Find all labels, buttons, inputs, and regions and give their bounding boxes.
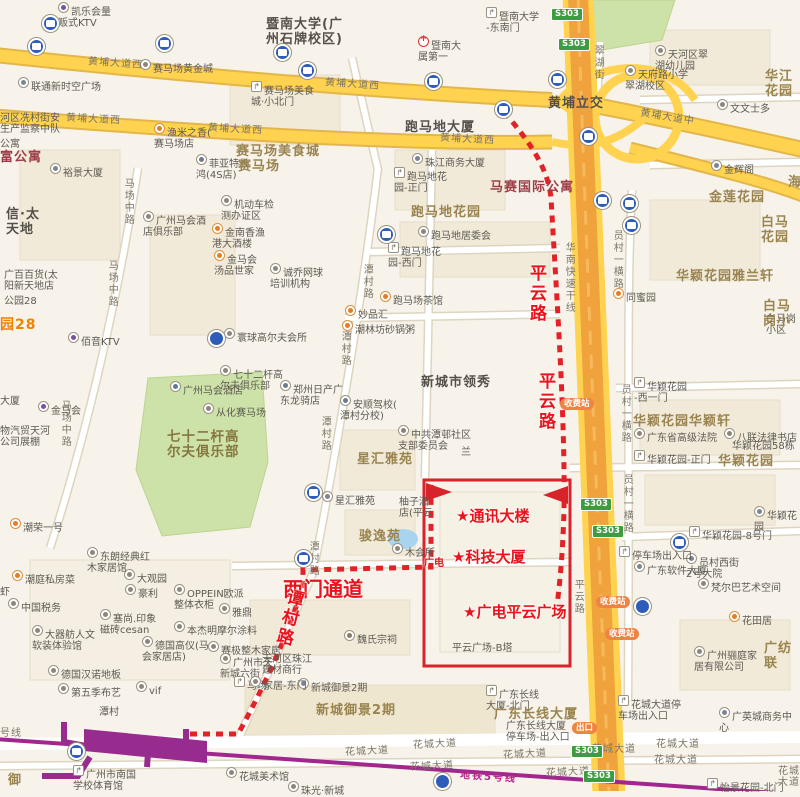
poi-icon: [224, 328, 235, 339]
poi-label: 广东软件大厦: [634, 561, 707, 577]
gate-icon: [634, 450, 645, 461]
road-label: 花城大道: [410, 760, 455, 773]
area-label: 赛马场美食城: [236, 145, 320, 160]
poi-label: 星汇雅苑: [322, 491, 375, 507]
area-label: 信·太 天地: [6, 208, 40, 237]
poi-label: 金马会 汤品世家: [214, 250, 257, 277]
poi-icon: [220, 365, 231, 376]
road-label: 潭村路: [361, 264, 372, 300]
route-shield-s303: S303: [580, 498, 612, 511]
gate-icon: [634, 377, 645, 388]
poi-label: 本杰明摩尔涂料: [174, 621, 257, 637]
poi-label: vif: [136, 681, 161, 697]
road-label: 潭村路: [319, 416, 330, 452]
poi-label: 跑马地居委会: [418, 226, 491, 242]
building-icon: [711, 160, 722, 171]
bus-stop-icon: [621, 195, 638, 212]
road-label: 马场中路: [59, 400, 70, 448]
poi-label: 联通新时空广场: [18, 77, 101, 93]
building-icon: [412, 153, 423, 164]
gate-icon: [619, 546, 630, 557]
poi-icon: [174, 621, 185, 632]
car-icon: [280, 380, 291, 391]
road-label: 花城大道: [503, 748, 548, 761]
poi-label: 华颖花园-8号门: [689, 526, 772, 542]
poi-label: 渔米之香( 赛马场店: [154, 123, 211, 150]
poi-label: 塞尚.印象 磁砖cesan: [100, 609, 156, 636]
road-label: 平云路: [572, 579, 583, 615]
toll-station-badge: 收费站: [605, 628, 639, 640]
area-label: 骏逸苑: [359, 530, 401, 545]
poi-label: 天府路小学 翠湖校区: [625, 65, 688, 92]
poi-label: 河区冼村街安 生产监察中队: [0, 113, 60, 135]
road-label: 员村一横路: [611, 230, 622, 290]
route-annotation: ★科技大厦: [452, 546, 525, 567]
poi-label: 花田居: [729, 611, 772, 627]
route-annotation: 谭村路: [269, 586, 308, 650]
food-icon: [212, 223, 223, 234]
route-annotation: 平云路: [524, 264, 549, 324]
poi-label: 大器舫人文 软装体验馆: [32, 625, 95, 652]
poi-label: 怡景花园-北门: [707, 778, 784, 794]
poi-icon: [694, 646, 705, 657]
road-label: 花城大道: [345, 745, 390, 758]
poi-label: 赛马场美食 城·小北门: [251, 81, 314, 108]
poi-label: 柚子酒 店(平云: [399, 497, 433, 519]
route-annotation: 平云路: [533, 372, 558, 432]
poi-label: 佰音KTV: [68, 332, 120, 348]
gate-icon: [707, 778, 718, 789]
gate-icon: [388, 242, 399, 253]
bus-stop-icon: [623, 217, 640, 234]
poi-icon: [136, 681, 147, 692]
route-annotation: ★广电平云广场: [463, 601, 566, 622]
road-label: 地铁5号线: [460, 770, 518, 785]
poi-label: 暨南大学 -东南门: [486, 7, 539, 34]
poi-label: 豪利: [125, 584, 158, 600]
area-label: 海: [788, 176, 800, 191]
poi-icon: [32, 625, 43, 636]
poi-label: 跑马地花 园-西门: [388, 242, 441, 269]
poi-label: 花城大道停 车场出入口: [618, 695, 681, 722]
food-icon: [380, 291, 391, 302]
building-icon: [50, 163, 61, 174]
area-label: 金莲花园: [709, 191, 765, 206]
map-labels-layer: 凯乐会量 贩式KTV联通新时空广场河区冼村街安 生产监察中队公寓裕景大厦渔米之香…: [0, 0, 800, 791]
poi-label: 华颖花园-正门: [634, 450, 711, 466]
poi-label: 诚乔网球 培训机构: [270, 263, 323, 290]
poi-label: 天河区珠江 建材商行: [262, 654, 312, 676]
temple-icon: [344, 630, 355, 641]
poi-label: 潮林坊砂锅粥: [342, 320, 415, 336]
area-label: 华江花园: [765, 70, 800, 99]
poi-label: 珠光·新城: [288, 781, 344, 797]
poi-label: 妙品汇: [345, 305, 388, 321]
poi-icon: [717, 99, 728, 110]
poi-icon: [142, 636, 153, 647]
bus-stop-icon: [425, 73, 442, 90]
road-label: 黄埔大道西: [440, 133, 496, 147]
poi-icon: [203, 403, 214, 414]
poi-label: 凯乐会量 贩式KTV: [58, 2, 111, 29]
bus-stop-icon: [671, 534, 688, 551]
road-label: 黄埔大道中: [639, 108, 695, 128]
poi-icon: [392, 543, 403, 554]
area-label: 园28: [0, 318, 36, 334]
poi-label: 公园28: [4, 296, 37, 307]
poi-label: 雅鼎: [219, 603, 252, 619]
poi-icon: [125, 584, 136, 595]
road-label: 翠湖街: [592, 45, 603, 81]
poi-icon: [221, 195, 232, 206]
road-label: 黄埔大道西: [66, 113, 122, 127]
area-label: 华颖花园华颖轩: [633, 415, 731, 430]
poi-icon: [174, 584, 185, 595]
poi-label: 广州市南国 学校体育馆: [73, 765, 136, 792]
bus-stop-icon: [305, 484, 322, 501]
poi-label: 从化赛马场: [203, 403, 266, 419]
parking-icon: [634, 598, 651, 615]
poi-label: 潭村: [99, 707, 119, 718]
bus-stop-icon: [156, 35, 173, 52]
gate-icon: [251, 81, 262, 92]
poi-icon: [250, 676, 261, 687]
gate-icon: [234, 676, 245, 687]
poi-label: 寰球高尔夫会所: [224, 328, 307, 344]
car-icon: [340, 395, 351, 406]
poi-label: 华颖花园58栋: [732, 441, 795, 452]
poi-label: 花城美术馆: [226, 767, 289, 783]
route-shield-s303: S303: [583, 770, 615, 783]
building-icon: [754, 506, 765, 517]
poi-label: 跑马场茶馆: [380, 291, 443, 307]
building-icon: [322, 491, 333, 502]
poi-icon: [270, 263, 281, 274]
route-annotation: ★通讯大楼: [456, 505, 529, 526]
poi-label: 金辉阁: [711, 160, 754, 176]
poi-label: 广东省高级法院: [634, 428, 717, 444]
bus-stop-icon: [594, 192, 611, 209]
poi-label: 安顺驾校( 潭村分校): [340, 395, 397, 422]
poi-icon: [226, 767, 237, 778]
poi-icon: [625, 65, 636, 76]
road-label: 花城大道: [778, 766, 800, 788]
exit-badge: 出口: [572, 722, 597, 734]
bus-stop-icon: [495, 101, 512, 118]
poi-label: 郑州日产广 东龙骑店: [280, 380, 343, 407]
road-label: 马场中路: [106, 260, 117, 308]
poi-label: 同蜜园: [613, 288, 656, 304]
route-shield-s303: S303: [571, 745, 603, 758]
area-label: 马赛国际公寓: [490, 181, 574, 196]
ktv-icon: [58, 2, 69, 13]
route-shield-s303: S303: [551, 8, 583, 21]
road-label: 花城大道: [654, 755, 698, 766]
poi-label: 家居-东门: [250, 676, 307, 692]
poi-icon: [724, 428, 735, 439]
poi-icon: [58, 683, 69, 694]
road-label: 马场中路: [122, 178, 133, 226]
poi-label: 广州马会酒店: [170, 381, 243, 397]
poi-icon: [288, 781, 299, 792]
building-icon: [634, 561, 645, 572]
area-label: 广东长线大厦: [494, 708, 578, 723]
road-label: 号线: [0, 728, 22, 739]
gate-icon: [689, 526, 700, 537]
area-label: 七十二杆高 尔夫俱乐部: [167, 430, 240, 460]
poi-label: 虾: [0, 587, 10, 598]
area-label: 黄埔立交: [548, 97, 604, 112]
road-label: 花城大道: [413, 738, 458, 751]
parking-icon: [208, 330, 225, 347]
area-label: 白马岗小: [763, 300, 800, 329]
poi-label: 第五季布艺: [58, 683, 121, 699]
food-icon: [154, 123, 165, 134]
route-shield-s303: S303: [558, 38, 590, 51]
poi-icon: [655, 45, 666, 56]
poi-icon: [219, 603, 230, 614]
poi-icon: [143, 211, 154, 222]
bus-stop-icon: [549, 71, 566, 88]
poi-icon: [87, 547, 98, 558]
road-label: 黄埔大道西: [88, 56, 144, 71]
poi-icon: [48, 665, 59, 676]
poi-icon: [100, 609, 111, 620]
poi-label: 新城御景2期: [298, 678, 367, 694]
road-label: 花城大道: [656, 739, 700, 750]
area-label: 华颖花园: [718, 455, 774, 470]
building-icon: [719, 707, 730, 718]
poi-label: 潮荣一号: [10, 518, 63, 534]
gate-icon: [486, 685, 497, 696]
food-icon: [342, 320, 353, 331]
poi-label: 东朗经典红 木家居馆: [87, 547, 150, 574]
poi-label: 魏氏宗祠: [344, 630, 397, 646]
hospital-icon: [418, 36, 429, 47]
area-label: 新城御景2期: [316, 704, 396, 719]
poi-label: 金南香渔 港大酒楼: [212, 223, 265, 250]
poi-label: 德国汉诺地板: [48, 665, 121, 681]
bus-stop-icon: [378, 226, 395, 243]
toll-station-badge: 收费站: [596, 596, 630, 608]
area-label: 跑马地花园: [411, 206, 481, 221]
poi-icon: [208, 641, 219, 652]
gate-icon: [618, 695, 629, 706]
poi-label: 物汽贸天河 公司展棚: [0, 426, 50, 448]
area-label: 白马花园: [761, 216, 800, 245]
area-label: 暨南大学(广 州石牌校区): [266, 18, 343, 47]
road-label: 华南快速干线: [563, 242, 574, 314]
area-label: 星汇雅苑: [357, 453, 413, 468]
poi-label: 德国高仪(马 会家居店): [142, 636, 209, 663]
area-label: 御: [8, 774, 22, 789]
bus-stop-icon: [42, 15, 59, 32]
road-label: 员村一横路: [619, 384, 630, 444]
food-icon: [214, 250, 225, 261]
poi-label: 赛马场黄金城: [140, 59, 213, 75]
food-icon: [10, 518, 21, 529]
map-canvas[interactable]: 凯乐会量 贩式KTV联通新时空广场河区冼村街安 生产监察中队公寓裕景大厦渔米之香…: [0, 0, 800, 791]
poi-label: 兰: [461, 447, 471, 458]
route-shield-s303: S303: [592, 525, 624, 538]
area-label: 华颖花园雅兰轩: [676, 270, 774, 285]
poi-label: 跑马地花 园-正门: [394, 167, 447, 194]
ktv-icon: [38, 401, 49, 412]
route-annotation: 广电: [424, 554, 444, 569]
food-icon: [345, 305, 356, 316]
poi-label: 潮庭私房菜: [12, 570, 75, 586]
poi-label: 广州骊庭家 居有限公司: [694, 646, 757, 673]
hotel-icon: [170, 381, 181, 392]
area-label: 赛马场: [238, 160, 280, 175]
poi-label: 广东长线大厦 停车场-出入口: [506, 721, 570, 743]
poi-label: 广州马会酒 店俱乐部: [143, 211, 206, 238]
building-icon: [18, 77, 29, 88]
area-label: 新城市领秀: [421, 376, 491, 391]
gov-icon: [398, 425, 409, 436]
poi-label: 文文士多: [717, 99, 770, 115]
poi-label: 大厦: [0, 396, 20, 407]
poi-label: 广英城商务中心: [719, 707, 800, 734]
poi-label: 裕景大厦: [50, 163, 103, 179]
toll-station-badge: 收费站: [560, 398, 594, 410]
poi-label: 公寓: [0, 139, 20, 150]
parking-icon: [434, 773, 451, 790]
road-label: 黄埔大道西: [208, 123, 264, 137]
poi-label: 暨南大 属第一: [418, 36, 461, 63]
gate-icon: [73, 765, 84, 776]
poi-label: 平云广场-B塔: [452, 643, 512, 654]
area-label: 广纺联: [764, 642, 800, 671]
gate-icon: [394, 167, 405, 178]
road-label: 黄埔大道西: [325, 77, 381, 92]
food-icon: [12, 570, 23, 581]
bus-stop-icon: [580, 128, 597, 145]
ktv-icon: [68, 332, 79, 343]
poi-icon: [8, 598, 19, 609]
poi-label: 广百百货(太 阳新天地店: [4, 270, 58, 292]
road-label: 潭村路: [339, 331, 350, 367]
bus-stop-icon: [68, 743, 85, 760]
bus-stop-icon: [295, 550, 312, 567]
poi-icon: [698, 578, 709, 589]
bus-stop-icon: [28, 38, 45, 55]
poi-label: 中国税务: [8, 598, 61, 614]
gate-icon: [486, 7, 497, 18]
bus-stop-icon: [299, 62, 316, 79]
poi-icon: [220, 653, 231, 664]
poi-label: 机动车检 测办证区: [221, 195, 274, 222]
poi-icon: [634, 428, 645, 439]
bus-stop-icon: [274, 44, 291, 61]
poi-icon: [418, 226, 429, 237]
car-icon: [196, 154, 207, 165]
food-icon: [729, 611, 740, 622]
poi-label: 华颖花园 -西一门: [634, 377, 687, 404]
area-label: 富公寓: [0, 151, 42, 166]
poi-label: 梵尔巴艺术空间: [698, 578, 781, 594]
